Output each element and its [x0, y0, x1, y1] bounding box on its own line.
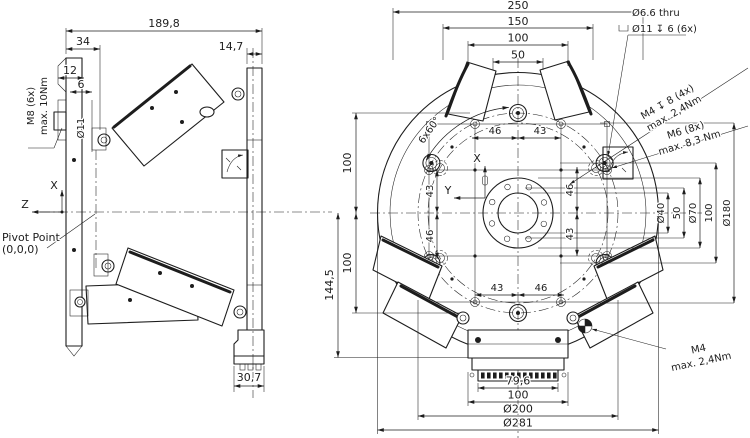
dim-d70: Ø70: [687, 203, 699, 224]
m4-pattern-callout: M4 ↧ 8 (4x) max. 2,4Nm: [570, 68, 748, 184]
front-view-axes: X Y: [444, 152, 488, 198]
dim-34: 34: [76, 35, 90, 48]
counterbore-icon: [619, 25, 628, 31]
axis-x-label-front: X: [473, 152, 481, 165]
m4-ground-line1: M4: [690, 343, 707, 357]
dim-foot-width: 30,7: [237, 371, 262, 384]
drawing-canvas: 189,8 34 14,7 12 6 Ø11 M8 (6x) max. 10Nm…: [0, 0, 750, 438]
m6-callout: M6 (8x) max. 8,3 Nm: [612, 116, 748, 168]
axis-z-label: Z: [21, 198, 29, 211]
thread-callout-line1: M8 (6x): [26, 87, 37, 125]
dim-43-bottom: 43: [491, 283, 504, 294]
rotation-label-sticker: [222, 150, 248, 178]
dim-d40: Ø40: [655, 203, 667, 224]
axis-y-label-front: Y: [444, 184, 452, 197]
dim-d281: Ø281: [503, 417, 533, 430]
counterbore-callout-line1: Ø6.6 thru: [632, 7, 680, 19]
dim-100-top: 100: [508, 32, 529, 45]
dim-46-bottom: 46: [535, 283, 548, 294]
dim-d200: Ø200: [503, 403, 533, 416]
dim-d180: Ø180: [721, 200, 733, 227]
front-top-dimensions: 250 150 100 50: [393, 0, 643, 70]
dim-6x60: 6x60°: [417, 115, 443, 146]
ground-symbol: [578, 319, 592, 333]
actuator-top: [92, 64, 244, 166]
dim-12: 12: [63, 64, 77, 77]
dim-46-top: 46: [489, 126, 502, 137]
dim-6: 6: [78, 78, 85, 91]
connector-assembly: [457, 312, 592, 381]
dim-14-7: 14,7: [219, 40, 244, 53]
dim-hole-diameter: Ø11: [75, 118, 87, 139]
dim-144-5: 144,5: [323, 269, 336, 301]
dim-250: 250: [508, 0, 529, 12]
dim-79-6: 79,6: [506, 375, 531, 388]
counterbore-callout-line2: Ø11 ↧ 6 (6x): [632, 23, 697, 35]
dim-100-left-upper: 100: [341, 153, 354, 174]
thread-callout-line2: max. 10Nm: [39, 77, 50, 135]
front-view: 250 150 100 50 100 100 144,5: [323, 0, 748, 438]
side-view-axes: X Z Pivot Point (0,0,0): [2, 179, 95, 256]
base-plate: [54, 58, 82, 356]
dim-50-top: 50: [511, 49, 525, 62]
dim-150: 150: [508, 15, 529, 28]
dim-43-left: 43: [425, 185, 436, 198]
dim-43-right: 43: [565, 228, 576, 241]
axis-x-label: X: [50, 179, 58, 192]
technical-drawing: 189,8 34 14,7 12 6 Ø11 M8 (6x) max. 10Nm…: [0, 0, 750, 438]
dim-100-left-lower: 100: [341, 253, 354, 274]
side-view: 189,8 34 14,7 12 6 Ø11 M8 (6x) max. 10Nm…: [2, 17, 332, 398]
dim-46-right: 46: [565, 184, 576, 197]
dim-46-left: 46: [425, 230, 436, 243]
dim-43-top: 43: [534, 126, 547, 137]
pivot-point-coords: (0,0,0): [2, 243, 39, 256]
dim-50-right: 50: [672, 207, 683, 220]
platform-plate: [234, 68, 264, 370]
dim-overall-width: 189,8: [148, 17, 180, 30]
dim-100-bottom: 100: [508, 389, 529, 402]
dim-100-right: 100: [704, 203, 715, 222]
